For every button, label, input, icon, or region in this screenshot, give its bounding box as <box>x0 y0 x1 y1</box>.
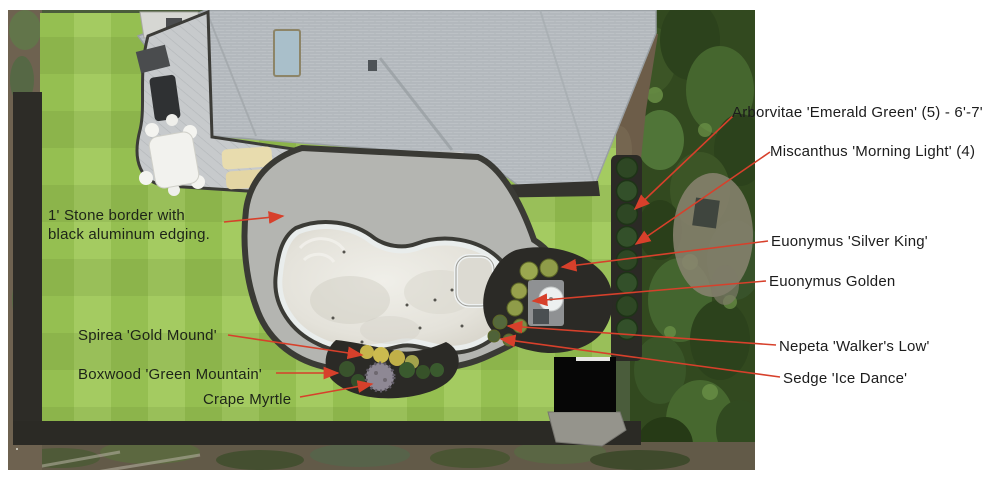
landscape-plan-canvas: Arborvitae 'Emerald Green' (5) - 6'-7' M… <box>0 0 1000 487</box>
pool-pump <box>533 309 549 324</box>
label-stone-border: 1' Stone border with black aluminum edgi… <box>48 206 210 244</box>
label-boxwood: Boxwood 'Green Mountain' <box>78 365 262 384</box>
crape-myrtle-plant <box>366 363 394 391</box>
label-nepeta: Nepeta 'Walker's Low' <box>779 337 930 356</box>
pool <box>280 227 510 349</box>
label-sedge: Sedge 'Ice Dance' <box>783 369 907 388</box>
label-miscanthus: Miscanthus 'Morning Light' (4) <box>770 142 975 161</box>
label-crape-myrtle: Crape Myrtle <box>203 390 291 409</box>
label-stone-border-line2: black aluminum edging. <box>48 225 210 244</box>
label-spirea: Spirea 'Gold Mound' <box>78 326 217 345</box>
label-stone-border-line1: 1' Stone border with <box>48 206 210 225</box>
scrub-bottom <box>8 440 755 478</box>
skylight <box>274 30 300 76</box>
label-arborvitae: Arborvitae 'Emerald Green' (5) - 6'-7' <box>732 103 983 122</box>
label-euonymus-silver-king: Euonymus 'Silver King' <box>771 232 928 251</box>
roof-vent <box>368 60 377 71</box>
label-euonymus-golden: Euonymus Golden <box>769 272 895 291</box>
shed <box>548 357 626 446</box>
